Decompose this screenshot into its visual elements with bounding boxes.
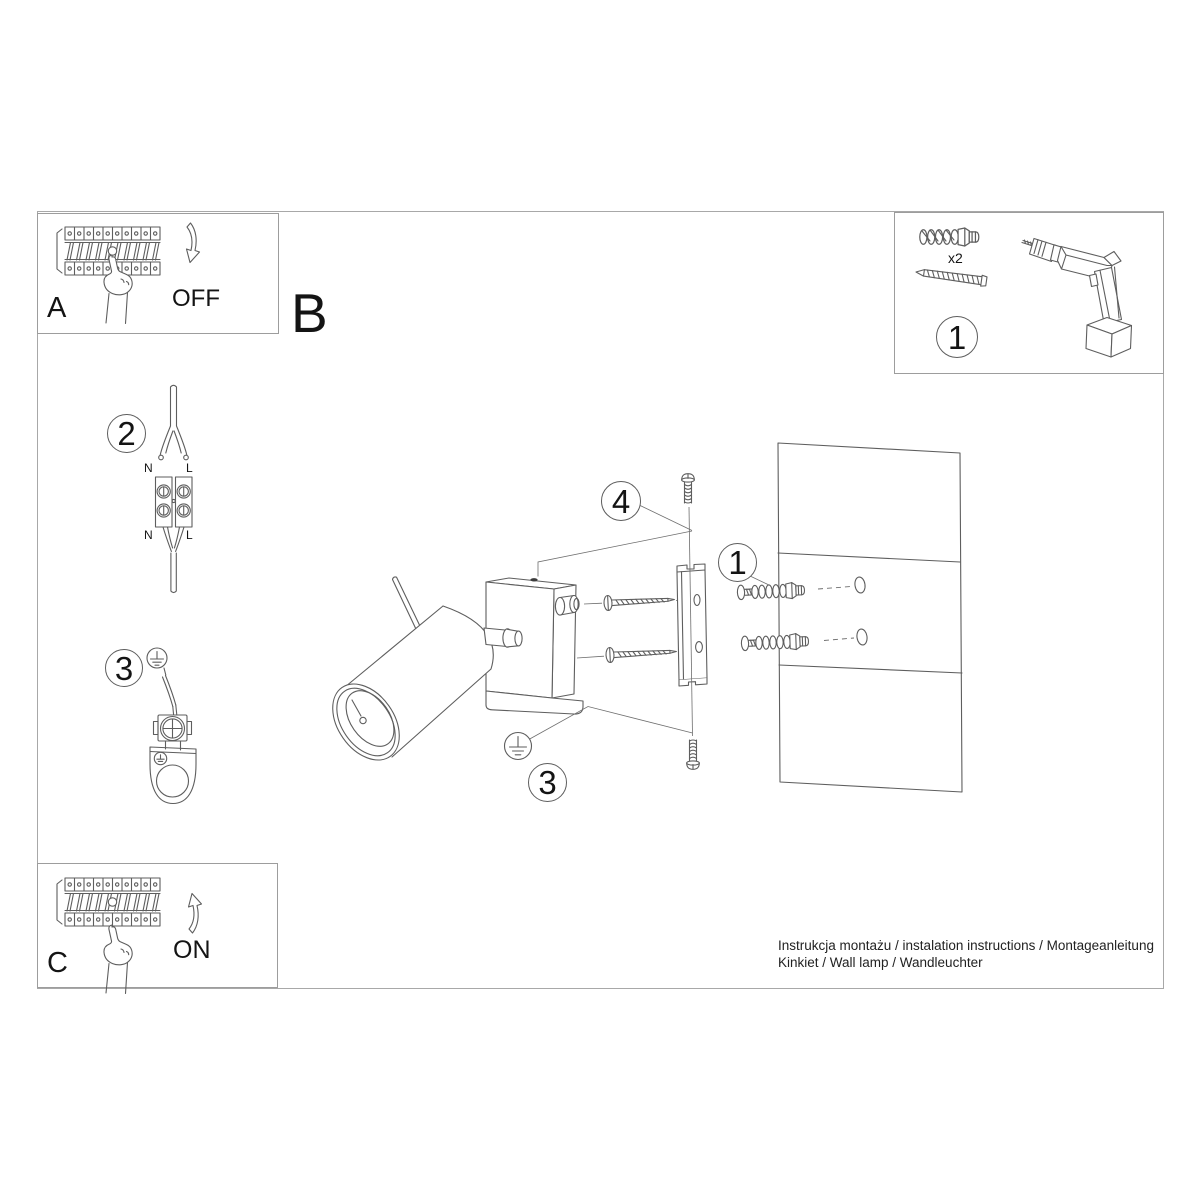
step-a-label: A: [47, 294, 66, 323]
anchor-qty-label: x2: [948, 251, 963, 265]
alignment-dash-top: [818, 587, 851, 590]
alignment-dash-bottom: [824, 638, 854, 641]
lamp-adjust-rod: [393, 577, 421, 629]
screw-icon: [915, 266, 987, 287]
earth-wire-diagram: [147, 648, 196, 804]
drill-icon: [1022, 239, 1132, 358]
wire-l-top-label: L: [186, 462, 193, 474]
callout-tools: 1: [936, 316, 978, 358]
off-label: OFF: [172, 287, 220, 311]
wall-plug-bottom: [741, 633, 809, 651]
screw-guide-bottom: [577, 656, 604, 658]
wall-lamp: [319, 577, 583, 773]
screw-guide-top: [584, 603, 602, 604]
machine-screw-top: [682, 474, 695, 503]
step-c-label: C: [47, 949, 68, 978]
wire-l-bottom-label: L: [186, 529, 193, 541]
mount-screw-top: [604, 592, 675, 611]
wall-panel: [778, 443, 962, 792]
callout-earth-main-number: 3: [538, 766, 556, 799]
machine-screw-bottom: [687, 740, 700, 769]
callout-earth-main: 3: [528, 763, 567, 802]
mounting-bracket: [677, 564, 707, 686]
on-label: ON: [173, 938, 211, 963]
callout-tools-number: 1: [948, 321, 966, 354]
callout-screw: 4: [601, 481, 641, 521]
callout-earth-left: 3: [105, 649, 143, 687]
wall-plug-top: [737, 582, 805, 600]
wire-n-top-label: N: [144, 462, 153, 474]
callout-anchors: 1: [718, 543, 757, 582]
mount-screw-bottom: [606, 644, 677, 663]
step-b-label: B: [291, 286, 328, 341]
wire-n-bottom-label: N: [144, 529, 153, 541]
callout-anchors-number: 1: [728, 546, 746, 579]
callout-screw-number: 4: [612, 485, 630, 518]
callout-wiring: 2: [107, 414, 146, 453]
instruction-title-line2: Kinkiet / Wall lamp / Wandleuchter: [778, 956, 983, 970]
callout-earth-left-number: 3: [115, 652, 133, 685]
instruction-title-line1: Instrukcja montażu / instalation instruc…: [778, 939, 1154, 953]
callout-wiring-number: 2: [117, 417, 135, 450]
diagram-art: [0, 0, 1200, 1200]
earth-symbol-main: [505, 733, 532, 760]
wiring-diagram: [156, 385, 193, 592]
instruction-sheet: { "doc": { "title_line1": "Instrukcja mo…: [0, 0, 1200, 1200]
wall-plug-icon: [920, 228, 979, 246]
